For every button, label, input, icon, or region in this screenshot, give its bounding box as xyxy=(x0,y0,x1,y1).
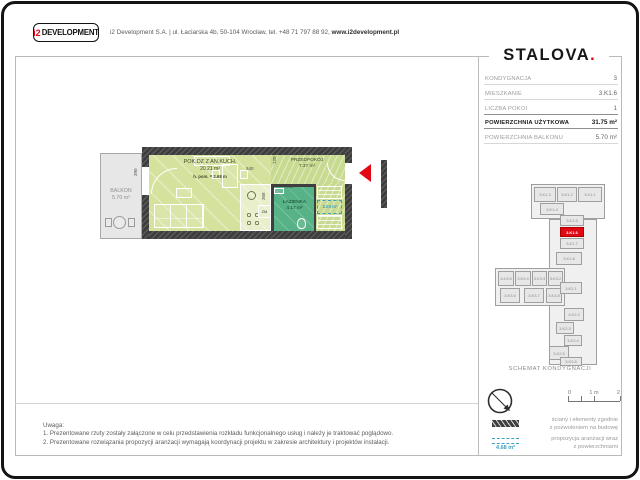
details-value: 3.K1.6 xyxy=(599,90,617,97)
note-line: 1. Prezentowane rzuty zostały załączone … xyxy=(43,430,475,438)
brand-dot: . xyxy=(590,46,595,65)
wall-left-upper xyxy=(142,147,149,167)
logo-development-text: DEVELOPMENT xyxy=(42,28,99,37)
dimension-label: 210 xyxy=(286,184,294,189)
schematic-outline-wing xyxy=(495,268,565,306)
notes-title: Uwaga: xyxy=(43,422,475,430)
details-label: LICZBA POKOI xyxy=(485,106,527,112)
proposal-legend-text: propozycja aranżacji wraz z powierzchnia… xyxy=(522,436,618,451)
stalova-logo: STALOVA. xyxy=(489,43,609,67)
sofa xyxy=(154,204,204,228)
wall-left-lower xyxy=(142,195,149,239)
details-value: 31.75 m² xyxy=(592,119,617,126)
north-arrow-icon xyxy=(486,387,516,417)
i2-development-logo: i2 DEVELOPMENT xyxy=(33,23,99,42)
dimension-label: 120 xyxy=(272,156,277,164)
contact-text: i2 Development S.A. | ul. Łaciarska 4b, … xyxy=(110,29,332,36)
details-row-3: POWIERZCHNIA UŻYTKOWA31.75 m² xyxy=(484,114,618,129)
brand-name: STALOVA xyxy=(503,46,590,65)
company-contact: i2 Development S.A. | ul. Łaciarska 4b, … xyxy=(110,29,399,36)
notes-divider xyxy=(15,403,478,404)
entrance-arrow-icon xyxy=(359,164,371,182)
note-line: 2. Prezentowane rozwiązania propozycji a… xyxy=(43,439,475,447)
schematic-outline-top xyxy=(531,184,605,219)
scale-rule xyxy=(568,397,620,402)
dimension-label: 390 xyxy=(133,168,138,176)
proposal-legend-area: 4.68 m² xyxy=(492,445,519,451)
sink-icon xyxy=(247,191,256,200)
balcony-chair xyxy=(105,218,112,227)
scale-bar: 0 1 m 2 xyxy=(568,390,620,402)
walls-legend-swatch xyxy=(492,420,519,427)
wall-top xyxy=(142,147,352,155)
details-row-0: KONDYGNACJA3 xyxy=(484,70,618,85)
bath-sink xyxy=(274,188,284,194)
logo-i2-text: i2 xyxy=(33,28,41,38)
proposal-legend-swatch xyxy=(492,438,519,444)
balcony-chair xyxy=(128,218,135,227)
hallway-label: PRZEDPOKÓJ 7.37 m² xyxy=(276,158,338,170)
wall-bottom xyxy=(142,231,352,239)
closet xyxy=(317,215,342,229)
schematic-caption: SCHEMAT KONDYGNACJI xyxy=(478,366,622,372)
wall-right-upper xyxy=(345,147,352,163)
details-label: KONDYGNACJA xyxy=(485,76,531,82)
washing-machine: ZM xyxy=(258,205,271,218)
balcony-table xyxy=(113,216,126,229)
details-table: KONDYGNACJA3MIESZKANIE3.K1.6LICZBA POKOI… xyxy=(484,70,618,144)
bathroom-label: ŁAZIENKA 4.17 m² xyxy=(274,200,315,212)
details-value: 5.70 m² xyxy=(596,134,617,141)
coffee-table xyxy=(176,188,192,198)
floorplan: BALKON 5.70 m² ZM xyxy=(98,146,394,244)
details-label: POWIERZCHNIA UŻYTKOWA xyxy=(485,120,569,126)
balcony-area: BALKON 5.70 m² xyxy=(100,153,142,239)
closet xyxy=(317,186,342,199)
notes: Uwaga: 1. Prezentowane rzuty zostały zał… xyxy=(43,422,475,447)
details-row-2: LICZBA POKOI1 xyxy=(484,100,618,115)
proposed-wardrobe-area: 2.03 m² xyxy=(318,204,342,209)
toilet-icon xyxy=(297,218,306,229)
dimension-label: 368 xyxy=(261,192,266,200)
details-value: 3 xyxy=(613,75,617,82)
website-link: www.i2development.pl xyxy=(332,29,400,36)
balcony-label: BALKON 5.70 m² xyxy=(101,188,141,201)
details-label: POWIERZCHNIA BALKONU xyxy=(485,135,563,141)
neighbor-wall xyxy=(381,160,387,208)
details-label: MIESZKANIE xyxy=(485,91,522,97)
dimension-label: 540 xyxy=(246,166,254,171)
column-divider xyxy=(478,56,479,456)
details-row-4: POWIERZCHNIA BALKONU5.70 m² xyxy=(484,129,618,144)
floorplan-sheet: i2 DEVELOPMENT i2 Development S.A. | ul.… xyxy=(0,0,640,480)
walls-legend-text: ściany i elementy zgodnie z pozwoleniem … xyxy=(522,417,618,432)
details-row-1: MIESZKANIE3.K1.6 xyxy=(484,85,618,100)
details-value: 1 xyxy=(613,105,617,112)
wall-right-lower xyxy=(345,184,352,239)
